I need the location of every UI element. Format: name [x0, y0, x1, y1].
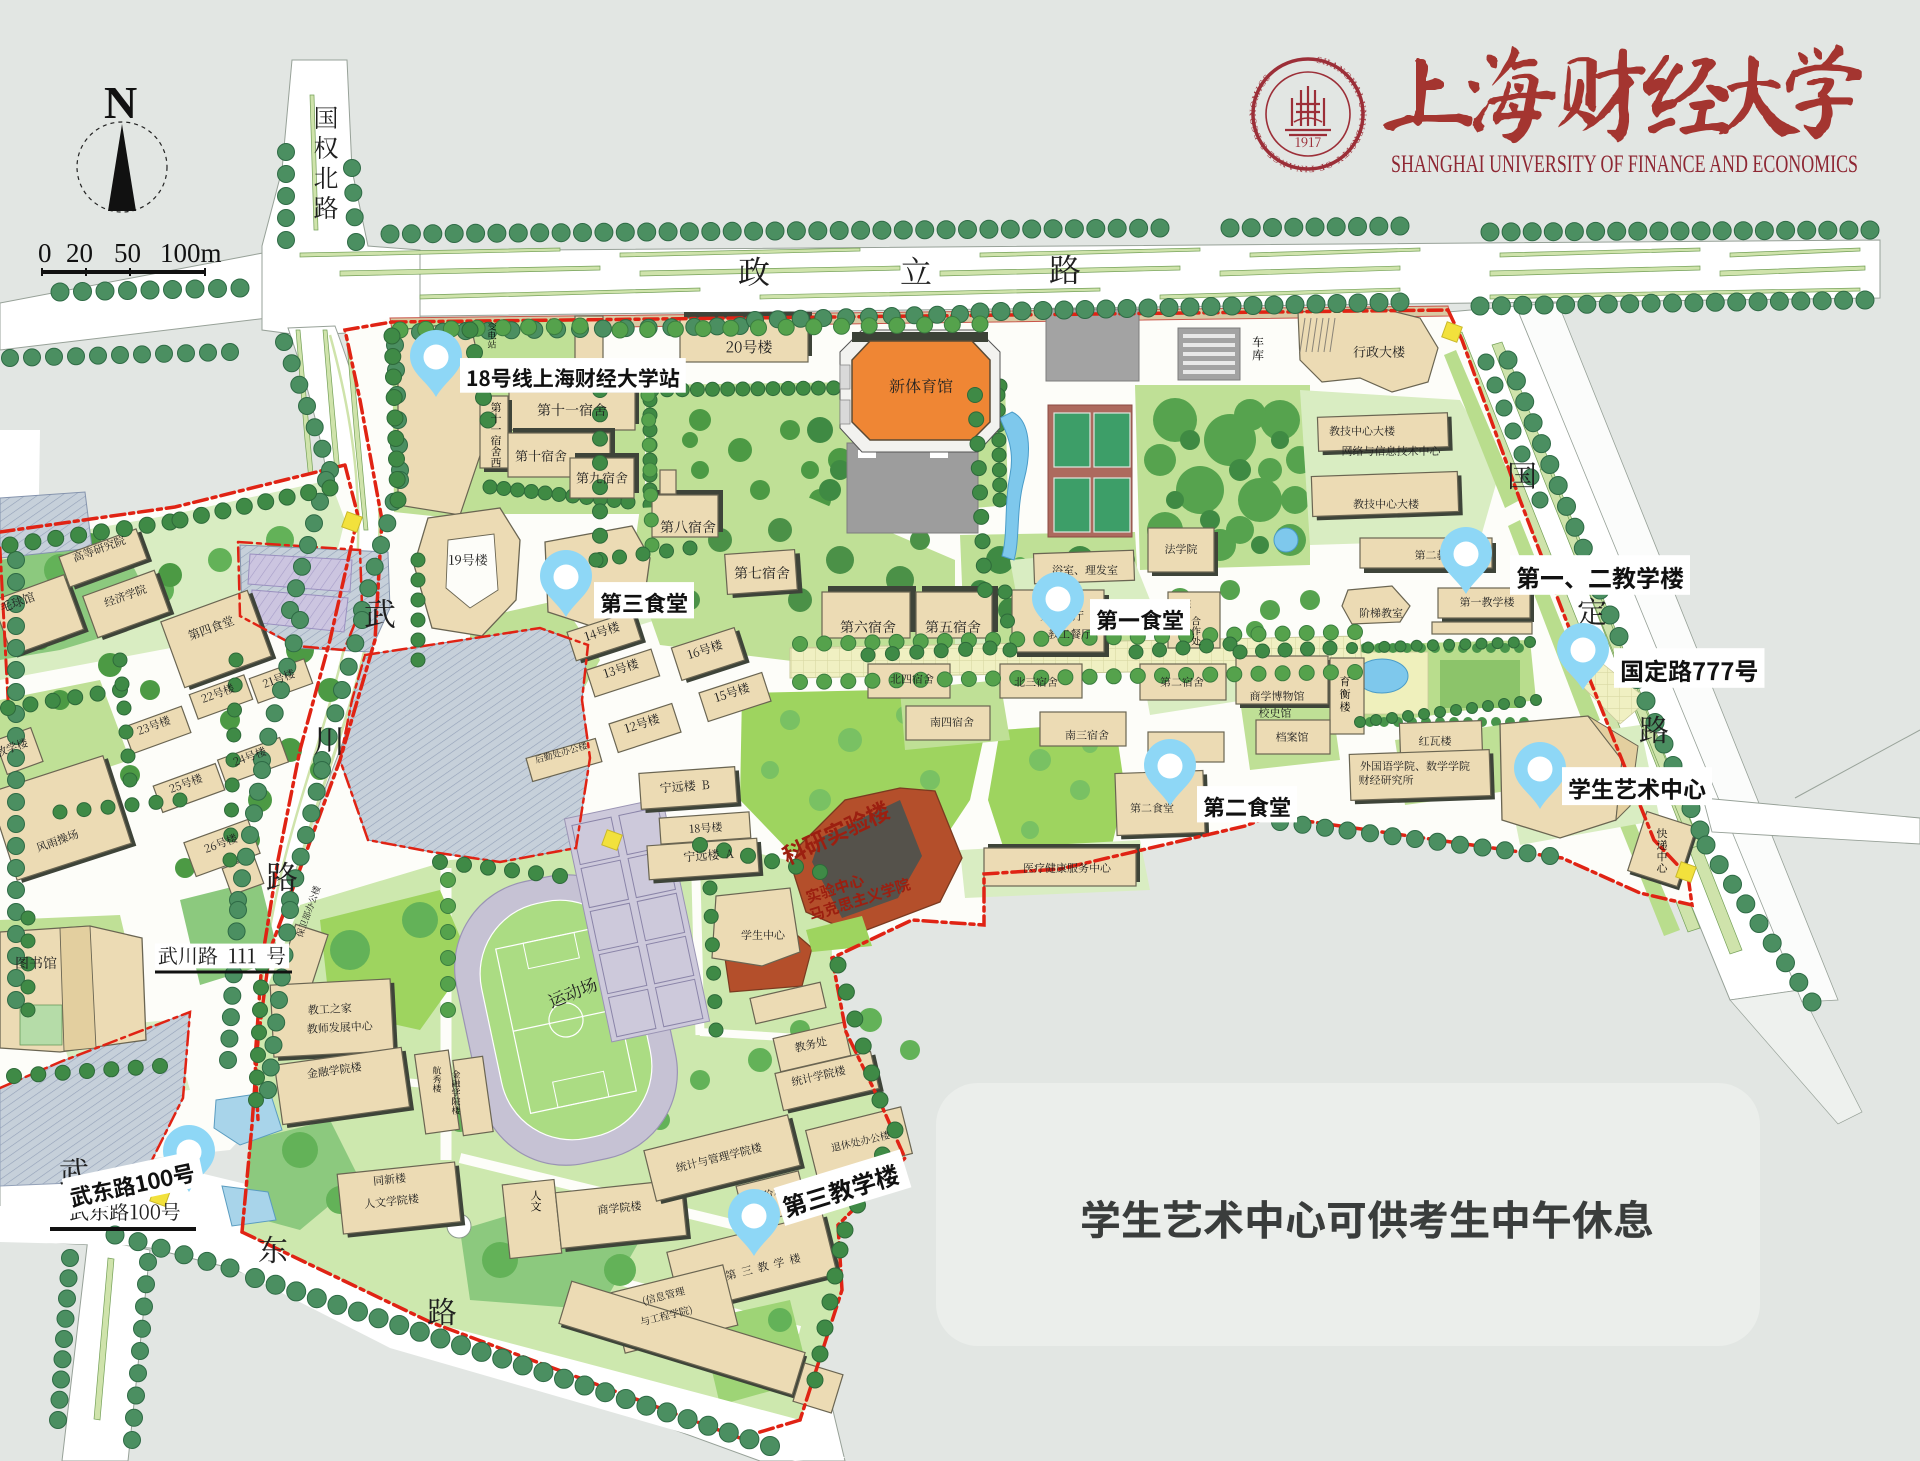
svg-text:0: 0	[38, 238, 52, 268]
svg-text:SHANGHAI UNIVERSITY OF FINANCE: SHANGHAI UNIVERSITY OF FINANCE AND ECONO…	[1391, 151, 1858, 178]
svg-text:N: N	[104, 77, 137, 128]
svg-text:50: 50	[114, 238, 141, 268]
svg-text:100m: 100m	[160, 238, 222, 268]
svg-text:20: 20	[66, 238, 93, 268]
